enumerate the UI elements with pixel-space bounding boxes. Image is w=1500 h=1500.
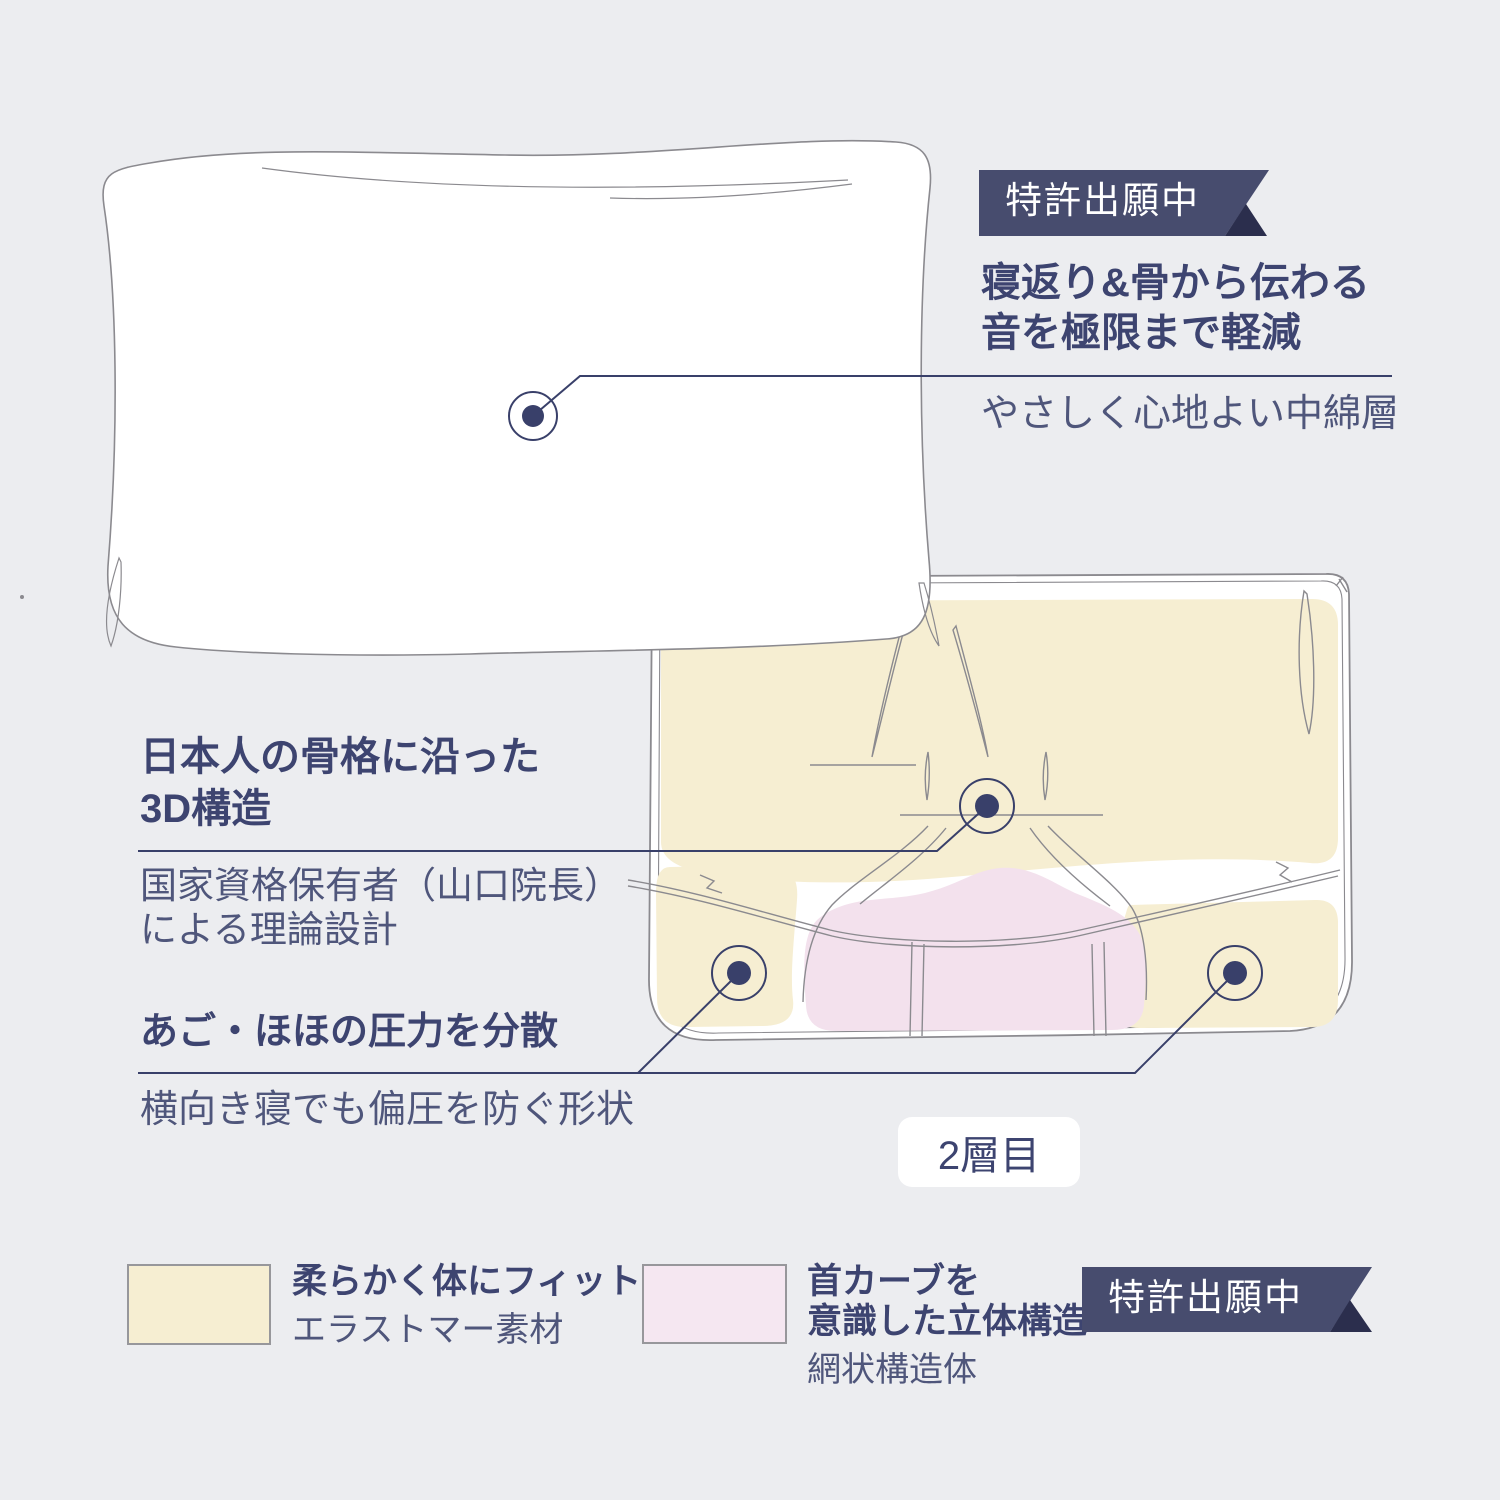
pressure-title: あご・ほほの圧力を分散 [140, 1006, 558, 1058]
stray-sketch-dot [20, 595, 24, 599]
structure-3d-desc-line2: による理論設計 [140, 908, 621, 952]
marker-dot-pressure-right [1223, 961, 1247, 985]
marker-dot-cotton [522, 405, 544, 427]
structure-3d-title-line1: 日本人の骨格に沿った [140, 731, 540, 783]
pillow-structure-infographic: 特許出願中 寝返り&骨から伝わる 音を極限まで軽減 やさしく心地よい中綿層 日本… [0, 0, 1500, 1500]
cotton-layer-title: 寝返り&骨から伝わる 音を極限まで軽減 [981, 258, 1370, 358]
legend-mesh-title: 首カーブを 意識した立体構造 [807, 1262, 1087, 1342]
legend-mesh-title-line1: 首カーブを [807, 1262, 1087, 1302]
marker-dot-3d [975, 794, 999, 818]
cotton-layer-description: やさしく心地よい中綿層 [981, 392, 1399, 437]
structure-3d-title-line2: 3D構造 [140, 783, 540, 835]
legend-elastomer-material: エラストマー素材 [292, 1310, 563, 1350]
patent-pending-ribbon-bottom: 特許出願中 [1082, 1267, 1374, 1332]
patent-pending-label-top: 特許出願中 [1005, 170, 1200, 236]
marker-dot-pressure-left [727, 961, 751, 985]
patent-pending-label-bottom: 特許出願中 [1108, 1267, 1303, 1333]
elastomer-region-right [1114, 900, 1338, 1028]
legend-mesh-title-line2: 意識した立体構造 [807, 1302, 1087, 1342]
pillow-layer1-illustration [20, 141, 939, 655]
structure-3d-title: 日本人の骨格に沿った 3D構造 [140, 731, 540, 835]
layer-2-label: 2層目 [938, 1123, 1040, 1181]
layer-2-label-chip: 2層目 [898, 1117, 1080, 1187]
structure-3d-desc-line1: 国家資格保有者（山口院長） [140, 864, 621, 908]
patent-pending-ribbon-top: 特許出願中 [979, 170, 1271, 236]
legend-swatch-elastomer [127, 1264, 271, 1345]
structure-3d-description: 国家資格保有者（山口院長） による理論設計 [140, 864, 621, 952]
pressure-description: 横向き寝でも偏圧を防ぐ形状 [140, 1088, 634, 1133]
cotton-title-line2: 音を極限まで軽減 [981, 308, 1370, 358]
legend-elastomer-title: 柔らかく体にフィット [292, 1262, 641, 1302]
cotton-title-line1: 寝返り&骨から伝わる [981, 258, 1370, 308]
legend-swatch-mesh [642, 1264, 787, 1344]
legend-mesh-material: 網状構造体 [807, 1350, 977, 1390]
